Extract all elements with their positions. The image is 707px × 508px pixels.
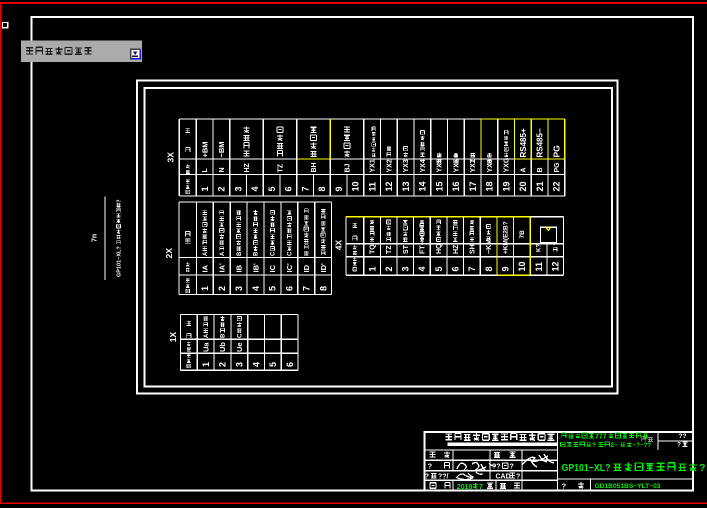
svg-text:15: 15: [434, 181, 444, 191]
svg-text:YX2: YX2: [386, 159, 393, 172]
svg-text:1: 1: [367, 266, 377, 271]
svg-text:RS485−: RS485−: [536, 128, 545, 157]
svg-text:1: 1: [201, 362, 211, 367]
svg-text:A: A: [203, 251, 209, 256]
svg-text:RS485+: RS485+: [519, 128, 528, 157]
svg-text:10: 10: [517, 261, 527, 271]
svg-text:FT−: FT−: [419, 241, 426, 254]
svg-text:5: 5: [268, 286, 278, 291]
svg-text:ID': ID': [319, 263, 328, 273]
svg-text:3: 3: [235, 362, 245, 367]
svg-text:Ua: Ua: [201, 342, 210, 352]
svg-text:2018: 2018: [457, 484, 473, 491]
svg-text:TZ: TZ: [278, 163, 285, 172]
svg-text:Ue: Ue: [235, 342, 244, 352]
svg-text:20: 20: [518, 181, 528, 191]
svg-text:YX8: YX8: [487, 159, 494, 172]
svg-text:A: A: [520, 167, 527, 172]
svg-text:7B: 7B: [519, 230, 526, 239]
svg-text:7: 7: [301, 286, 311, 291]
svg-text:?: ?: [516, 474, 520, 481]
svg-text:−KM: −KM: [486, 239, 493, 254]
svg-text:3X: 3X: [165, 152, 175, 163]
svg-text:9: 9: [334, 186, 344, 191]
svg-text:21: 21: [535, 181, 545, 191]
svg-text:A: A: [220, 251, 226, 256]
svg-text:7: 7: [479, 484, 483, 491]
svg-text:6: 6: [451, 266, 461, 271]
svg-text:YX4: YX4: [420, 159, 427, 172]
svg-text:6: 6: [285, 362, 295, 367]
svg-text:6: 6: [285, 286, 295, 291]
svg-text:9: 9: [500, 266, 510, 271]
svg-text:5: 5: [434, 266, 444, 271]
svg-text:2: 2: [217, 186, 227, 191]
svg-text:2X: 2X: [164, 248, 174, 259]
svg-text:7n: 7n: [92, 234, 99, 242]
svg-text:2−: 2−: [611, 442, 618, 449]
svg-text:11: 11: [534, 262, 544, 272]
svg-text:13: 13: [401, 181, 411, 191]
svg-text:YXG: YXG: [504, 157, 511, 172]
svg-text:?: ?: [425, 474, 429, 481]
svg-text:SH: SH: [469, 244, 476, 254]
svg-text:BJ: BJ: [345, 163, 352, 172]
svg-text:YX1: YX1: [370, 159, 377, 172]
svg-text:2: 2: [384, 266, 394, 271]
svg-text:GP101−XL?: GP101−XL?: [562, 462, 611, 474]
svg-text:+KM(E2B?: +KM(E2B?: [503, 221, 510, 254]
svg-text:4: 4: [251, 362, 261, 367]
svg-text:B: B: [254, 251, 260, 256]
svg-text:HZ: HZ: [453, 244, 460, 254]
svg-text:8: 8: [484, 266, 494, 271]
svg-text:4: 4: [417, 266, 427, 271]
svg-text:??: ??: [492, 464, 501, 471]
svg-text:?: ?: [677, 442, 681, 449]
svg-text:IB': IB': [251, 263, 260, 273]
svg-text:?: ?: [562, 481, 567, 490]
svg-text:+BM: +BM: [200, 141, 209, 157]
svg-text:A: A: [204, 333, 210, 338]
svg-text:PG: PG: [551, 145, 561, 158]
svg-text:16: 16: [451, 181, 461, 191]
svg-text:5: 5: [268, 362, 278, 367]
svg-text:14: 14: [418, 181, 428, 191]
svg-text:4: 4: [251, 286, 261, 291]
svg-text:IB: IB: [234, 264, 243, 272]
svg-text:C: C: [271, 251, 277, 256]
svg-text:B: B: [221, 333, 227, 338]
svg-text:??: ??: [679, 433, 687, 440]
svg-text:10: 10: [351, 181, 361, 191]
svg-text:8: 8: [318, 286, 328, 291]
svg-text:4X: 4X: [334, 240, 344, 251]
svg-text:8: 8: [317, 186, 327, 191]
svg-text:3: 3: [233, 186, 243, 191]
svg-text:1: 1: [200, 186, 210, 191]
svg-text:TZ: TZ: [386, 245, 393, 254]
svg-text:?: ?: [592, 442, 596, 449]
svg-text:ST: ST: [403, 244, 410, 254]
svg-text:22: 22: [552, 181, 562, 191]
svg-text:IC': IC': [285, 263, 294, 273]
svg-text:11: 11: [367, 182, 377, 192]
svg-text:7: 7: [467, 266, 477, 271]
svg-text:?: ?: [510, 464, 514, 471]
svg-text:IA: IA: [201, 264, 210, 272]
svg-text:L: L: [202, 168, 209, 173]
svg-text:IA': IA': [217, 263, 226, 273]
svg-text:C: C: [288, 251, 294, 256]
svg-text:777: 777: [595, 434, 607, 441]
svg-text:5: 5: [267, 186, 277, 191]
svg-text:N: N: [219, 167, 226, 172]
svg-text:−BM: −BM: [217, 141, 226, 157]
svg-text:1: 1: [200, 286, 210, 291]
svg-text:4: 4: [250, 186, 260, 191]
svg-text:7: 7: [300, 186, 310, 191]
svg-text:2: 2: [217, 286, 227, 291]
svg-text:IC: IC: [268, 264, 277, 272]
svg-text:B: B: [237, 251, 243, 256]
svg-text:CAD: CAD: [496, 474, 511, 481]
svg-text:3: 3: [234, 286, 244, 291]
svg-text:??/: ??/: [438, 474, 449, 481]
svg-text:BH: BH: [311, 162, 318, 172]
svg-text:18: 18: [485, 181, 495, 191]
svg-text:K?: K?: [537, 244, 543, 252]
svg-text:ID: ID: [302, 264, 311, 272]
svg-text:1X: 1X: [168, 332, 178, 343]
svg-text:HZ: HZ: [244, 162, 251, 172]
svg-text:12: 12: [550, 261, 560, 271]
svg-text:GD1B051BS−YLT−03: GD1B051BS−YLT−03: [595, 483, 661, 490]
svg-text:PG: PG: [554, 162, 561, 173]
svg-text:17: 17: [468, 181, 478, 191]
svg-text:C: C: [237, 333, 243, 338]
svg-text:HQ: HQ: [436, 243, 443, 254]
svg-text:TQ: TQ: [370, 244, 377, 254]
svg-text:6: 6: [284, 186, 294, 191]
svg-text:?: ?: [699, 462, 705, 474]
svg-text:?: ?: [428, 462, 433, 471]
svg-text:B: B: [537, 167, 544, 172]
svg-text:GP101−XL?: GP101−XL?: [116, 246, 122, 277]
svg-text:YX3: YX3: [403, 159, 410, 172]
svg-text:Ub: Ub: [218, 342, 227, 352]
svg-text:12: 12: [384, 181, 394, 191]
svg-text:−?−??: −?−??: [633, 442, 652, 449]
svg-text:3: 3: [401, 266, 411, 271]
svg-text:2: 2: [218, 362, 228, 367]
svg-text:19: 19: [501, 181, 511, 191]
